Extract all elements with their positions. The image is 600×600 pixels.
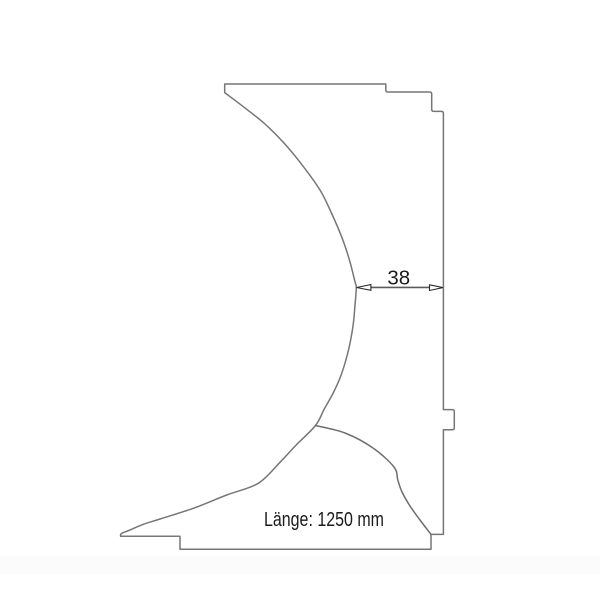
svg-text:38: 38 (387, 266, 410, 289)
svg-text:Länge: 1250 mm: Länge: 1250 mm (264, 507, 384, 530)
